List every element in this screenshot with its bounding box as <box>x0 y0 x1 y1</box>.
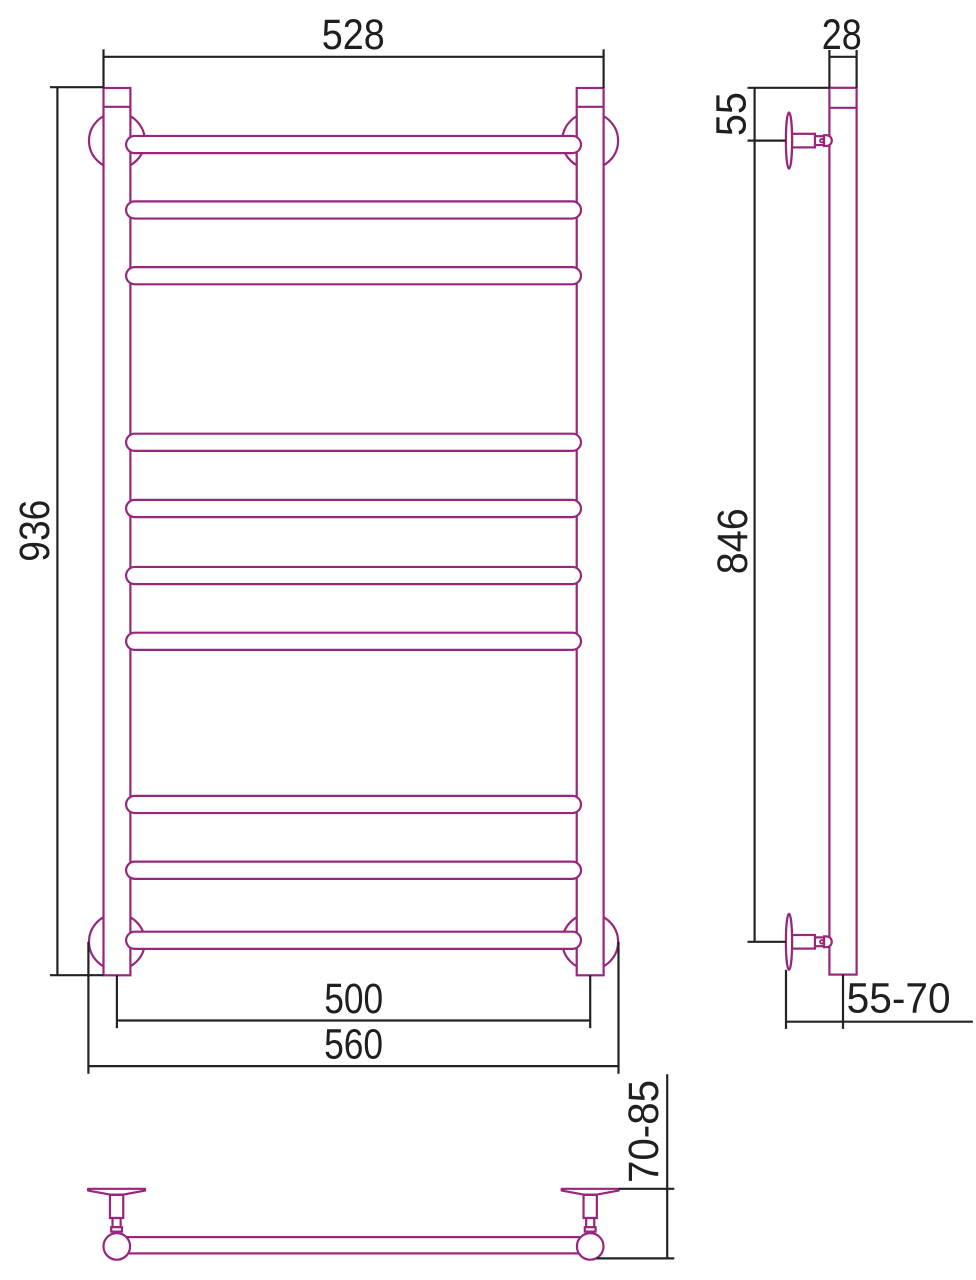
svg-text:70-85: 70-85 <box>620 1080 668 1183</box>
svg-text:55-70: 55-70 <box>847 975 951 1023</box>
svg-text:846: 846 <box>709 508 757 574</box>
svg-text:528: 528 <box>322 11 385 59</box>
svg-text:500: 500 <box>324 975 383 1023</box>
svg-text:55: 55 <box>707 92 755 136</box>
svg-text:560: 560 <box>324 1021 383 1069</box>
svg-text:28: 28 <box>822 11 862 59</box>
svg-text:936: 936 <box>11 500 59 562</box>
